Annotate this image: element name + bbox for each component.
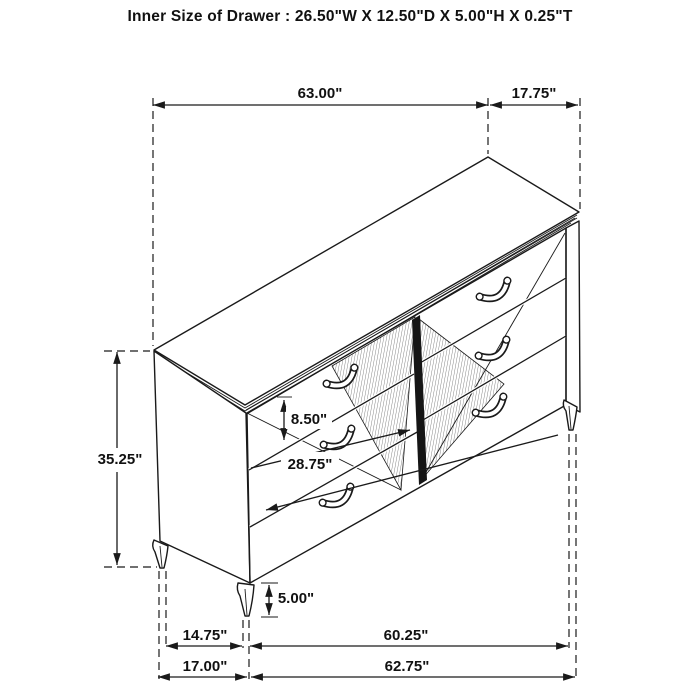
dim-base-width-outer: 62.75" [251,658,575,677]
dim-base-depth-outer-label: 17.00" [183,658,228,675]
dim-base-width-inner-label: 60.25" [384,627,429,644]
dim-top-width-label: 63.00" [298,85,343,102]
dim-base-width-inner: 60.25" [250,627,568,646]
dim-drawer-height: 8.50" [277,397,332,440]
dresser-right-edge [566,221,580,412]
dim-drawer-height-label: 8.50" [291,411,327,428]
dimension-diagram-page: Inner Size of Drawer : 26.50"W X 12.50"D… [0,0,700,700]
drawer-handle [475,276,515,306]
dim-drawer-width-label: 28.75" [288,456,333,473]
dim-base-depth-inner: 14.75" [166,627,242,646]
dim-base-width-outer-label: 62.75" [385,658,430,675]
dim-leg-height: 5.00" [261,583,314,617]
dim-top-depth: 17.75" [490,85,578,105]
dresser-drawing [153,157,580,616]
dim-top-depth-label: 17.75" [512,85,557,102]
drawer-handle [474,335,514,365]
dim-top-width: 63.00" [153,85,488,105]
dim-overall-height: 35.25" [98,352,143,565]
dim-base-depth-outer: 17.00" [158,658,247,677]
dim-leg-height-label: 5.00" [278,590,314,607]
dresser-dimension-diagram: 63.00" 17.75" 35.25" 8.50" [0,0,700,700]
dim-overall-height-label: 35.25" [98,451,143,468]
dim-base-depth-inner-label: 14.75" [183,627,228,644]
